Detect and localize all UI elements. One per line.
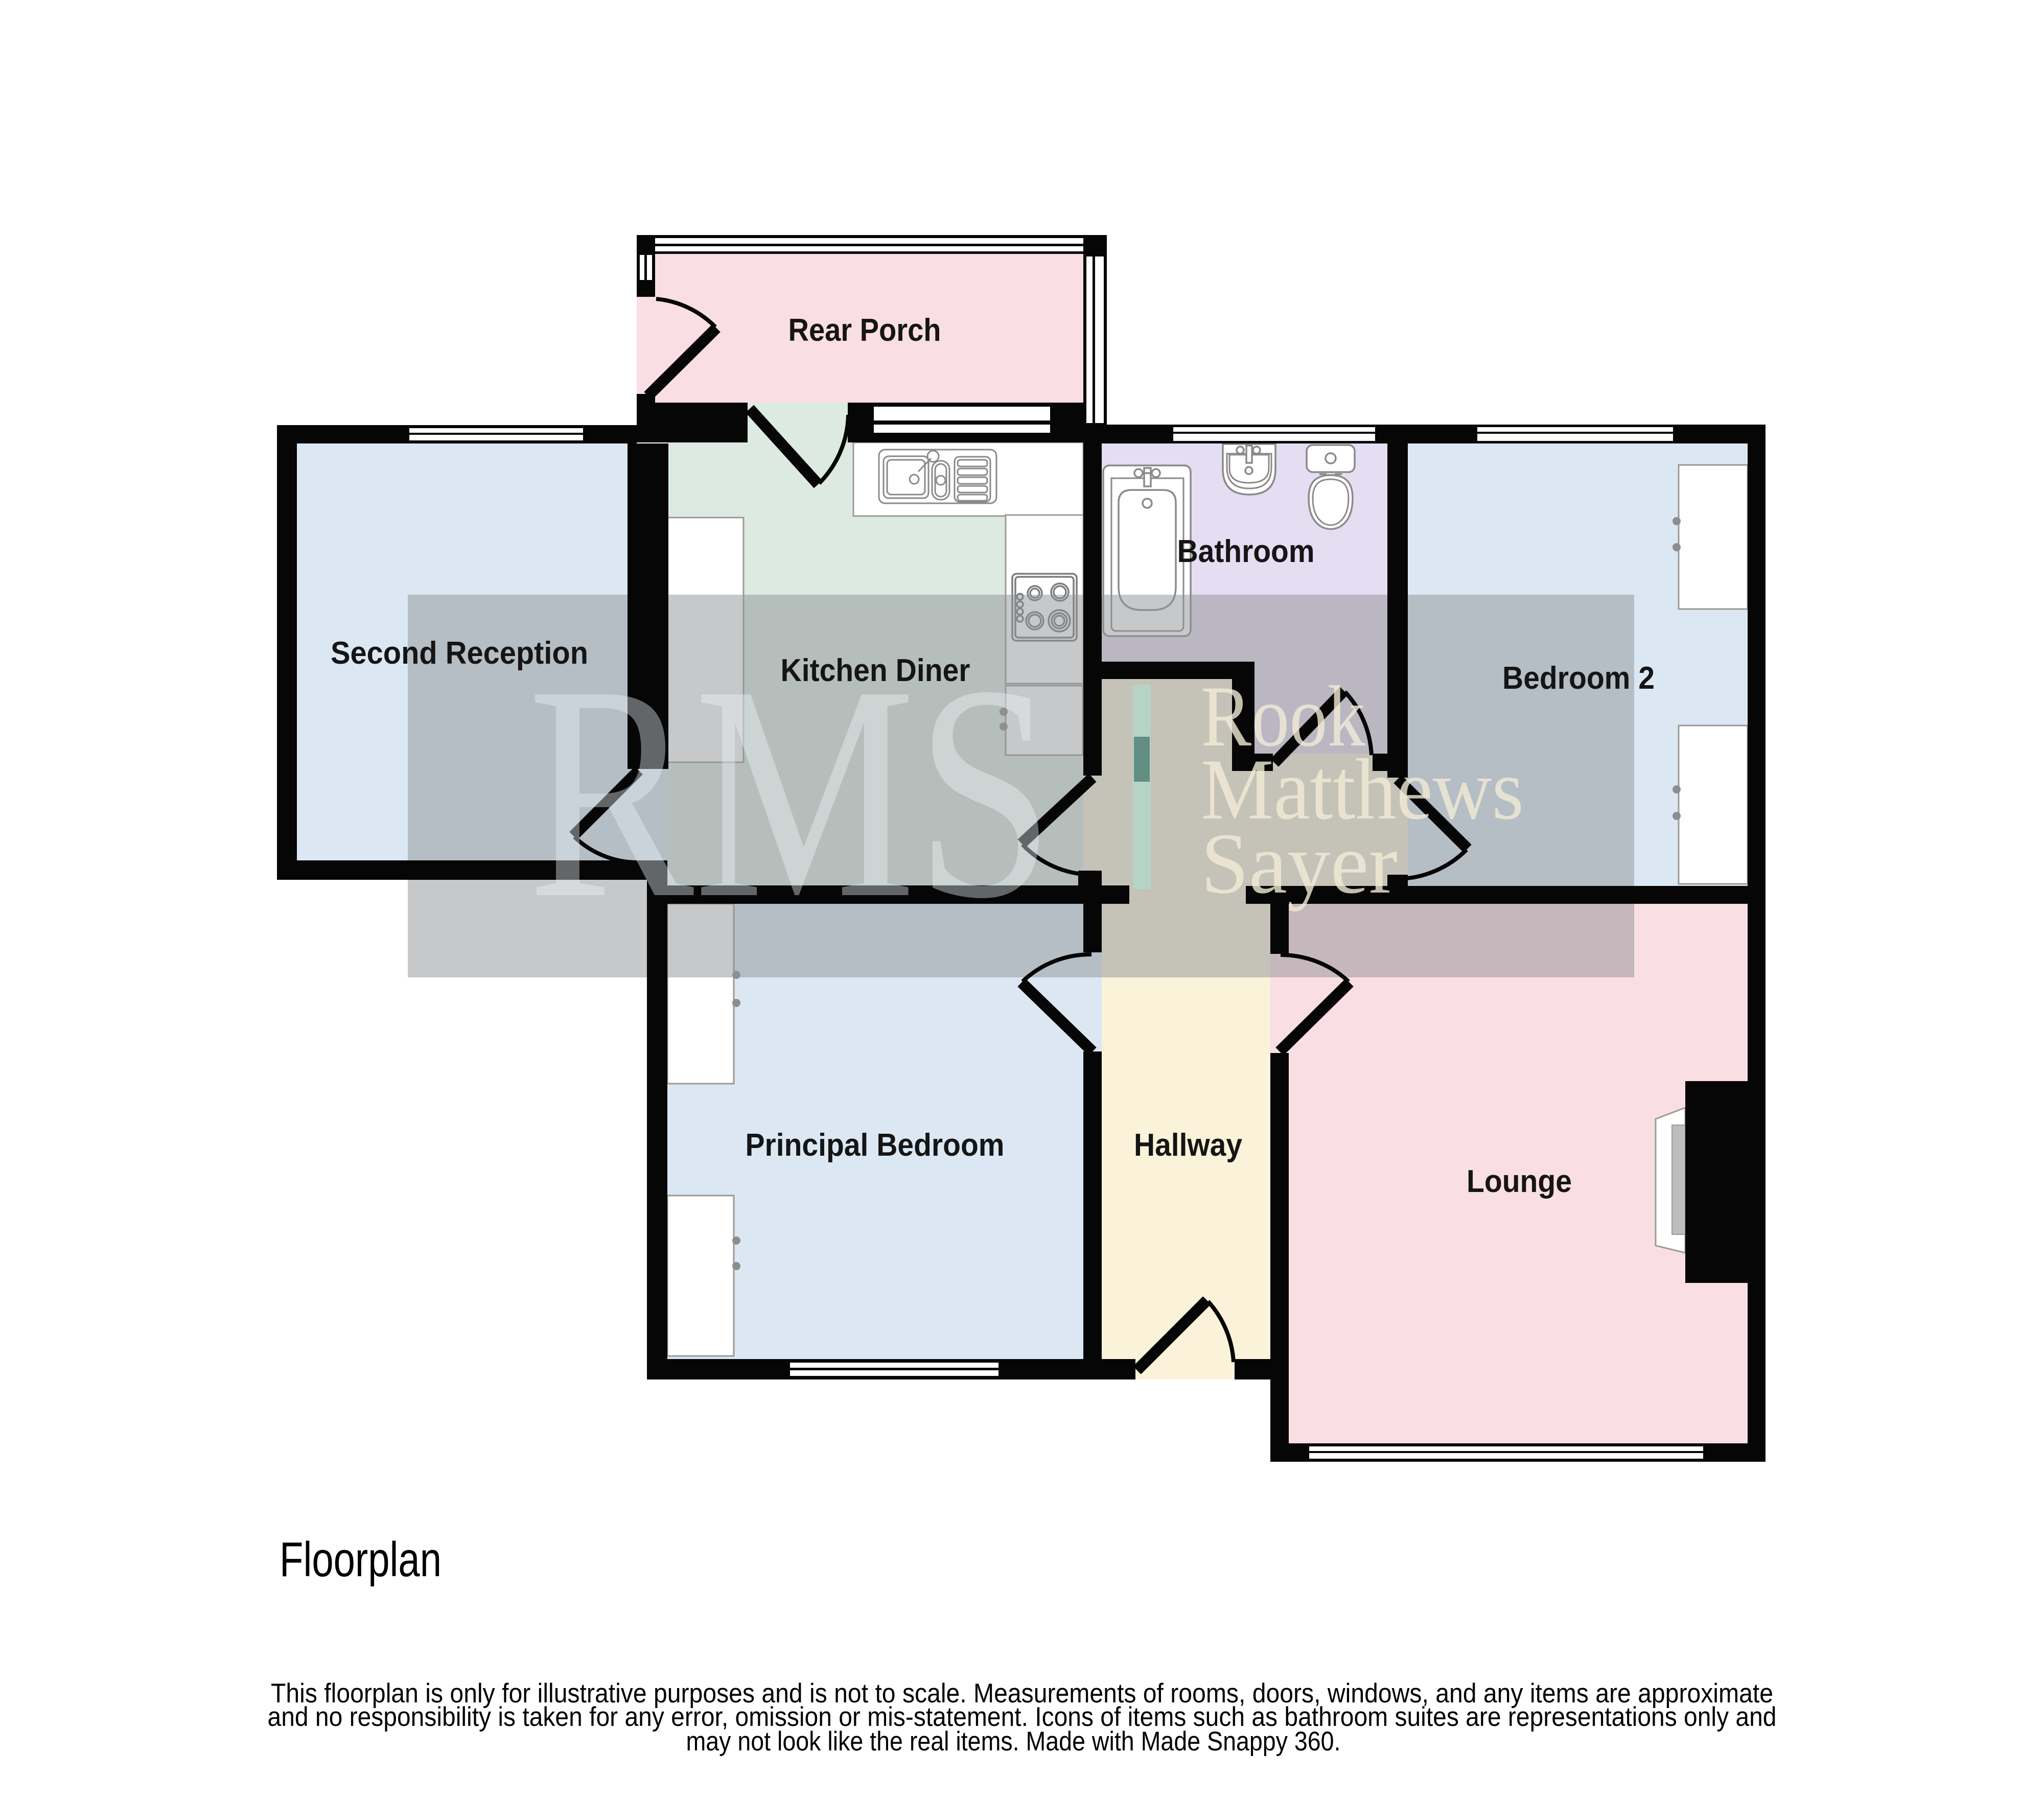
svg-text:Second Reception: Second Reception [331, 636, 588, 671]
svg-text:Bedroom 2: Bedroom 2 [1502, 661, 1655, 696]
svg-text:Principal Bedroom: Principal Bedroom [746, 1128, 1005, 1163]
svg-text:Hallway: Hallway [1134, 1128, 1242, 1163]
svg-text:Lounge: Lounge [1467, 1164, 1572, 1199]
svg-text:may not look like the real ite: may not look like the real items. Made w… [686, 1726, 1341, 1757]
svg-text:Kitchen Diner: Kitchen Diner [781, 653, 970, 688]
svg-text:Sayer: Sayer [1201, 815, 1398, 911]
svg-text:Rear Porch: Rear Porch [788, 313, 941, 348]
svg-text:Floorplan: Floorplan [280, 1532, 442, 1587]
svg-text:Bathroom: Bathroom [1177, 534, 1315, 569]
